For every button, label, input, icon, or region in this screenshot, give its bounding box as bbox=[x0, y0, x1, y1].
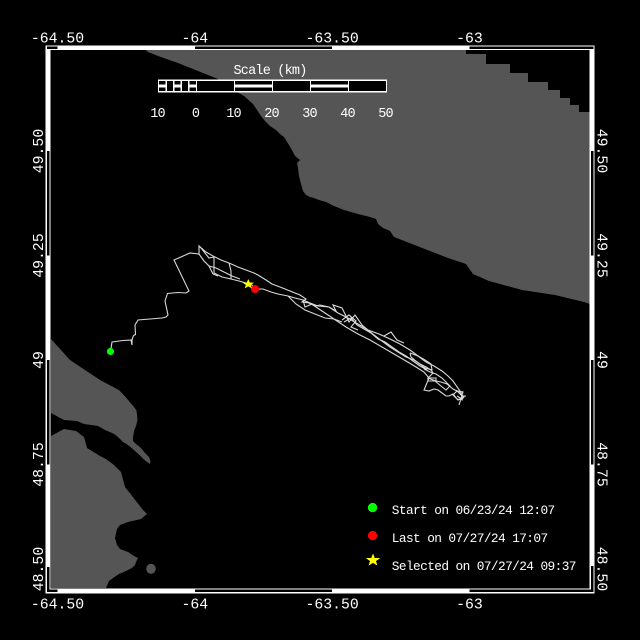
svg-text:48.50: 48.50 bbox=[32, 547, 48, 591]
svg-text:Selected on 07/27/24 09:37: Selected on 07/27/24 09:37 bbox=[392, 559, 576, 574]
svg-text:-64: -64 bbox=[181, 598, 208, 614]
svg-text:49.25: 49.25 bbox=[32, 233, 48, 277]
svg-text:49.25: 49.25 bbox=[593, 233, 609, 277]
svg-text:Last on 07/27/24 17:07: Last on 07/27/24 17:07 bbox=[392, 531, 548, 546]
svg-text:Scale (km): Scale (km) bbox=[233, 64, 306, 79]
svg-text:48.75: 48.75 bbox=[32, 442, 48, 486]
svg-text:20: 20 bbox=[264, 107, 279, 122]
svg-text:10: 10 bbox=[226, 107, 241, 122]
svg-text:-63.50: -63.50 bbox=[305, 598, 358, 614]
svg-text:-63.50: -63.50 bbox=[305, 32, 358, 48]
svg-text:Start on 06/23/24 12:07: Start on 06/23/24 12:07 bbox=[392, 503, 555, 518]
svg-text:49.50: 49.50 bbox=[32, 129, 48, 173]
svg-text:49.50: 49.50 bbox=[593, 129, 609, 173]
svg-text:-63: -63 bbox=[456, 598, 483, 614]
svg-text:10: 10 bbox=[150, 107, 165, 122]
svg-text:-64.50: -64.50 bbox=[31, 598, 84, 614]
svg-text:40: 40 bbox=[340, 107, 355, 122]
svg-text:0: 0 bbox=[192, 107, 200, 122]
svg-text:-64.50: -64.50 bbox=[31, 32, 84, 48]
svg-text:50: 50 bbox=[378, 107, 393, 122]
svg-text:49: 49 bbox=[32, 351, 48, 369]
svg-text:-63: -63 bbox=[456, 32, 483, 48]
svg-text:30: 30 bbox=[302, 107, 317, 122]
svg-text:-64: -64 bbox=[181, 32, 208, 48]
svg-text:48.75: 48.75 bbox=[593, 442, 609, 486]
svg-text:48.50: 48.50 bbox=[593, 547, 609, 591]
svg-text:49: 49 bbox=[593, 351, 609, 369]
